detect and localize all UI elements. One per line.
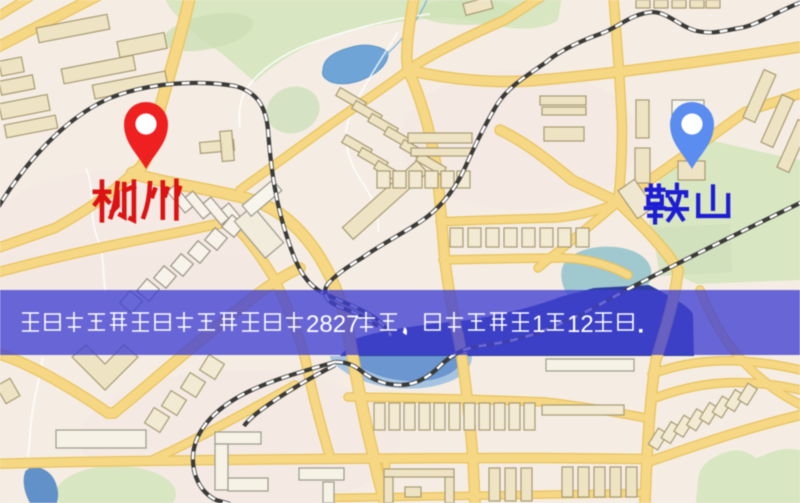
svg-text:2827: 2827	[306, 311, 359, 338]
svg-text:12: 12	[567, 311, 594, 338]
svg-text:1: 1	[532, 311, 545, 338]
